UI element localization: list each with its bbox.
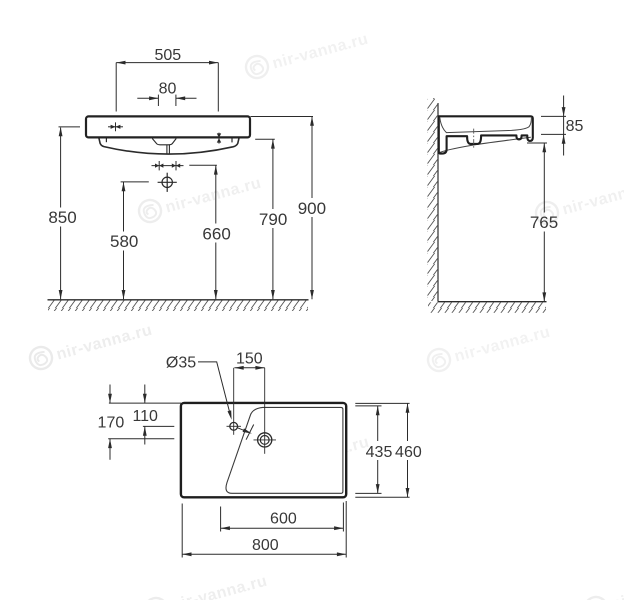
svg-text:85: 85 — [566, 118, 584, 135]
svg-text:790: 790 — [259, 210, 287, 229]
svg-text:800: 800 — [252, 537, 279, 554]
svg-text:460: 460 — [395, 444, 422, 461]
svg-text:Ø35: Ø35 — [166, 355, 196, 372]
svg-text:580: 580 — [110, 232, 138, 251]
svg-text:850: 850 — [48, 208, 76, 227]
svg-text:900: 900 — [298, 199, 326, 218]
svg-text:660: 660 — [202, 225, 230, 244]
svg-text:170: 170 — [98, 415, 125, 432]
svg-text:765: 765 — [530, 213, 558, 232]
svg-text:80: 80 — [159, 81, 177, 98]
svg-text:150: 150 — [236, 350, 263, 367]
svg-text:600: 600 — [270, 511, 297, 528]
svg-text:110: 110 — [132, 408, 158, 425]
svg-text:505: 505 — [154, 47, 181, 64]
svg-text:435: 435 — [366, 444, 393, 461]
